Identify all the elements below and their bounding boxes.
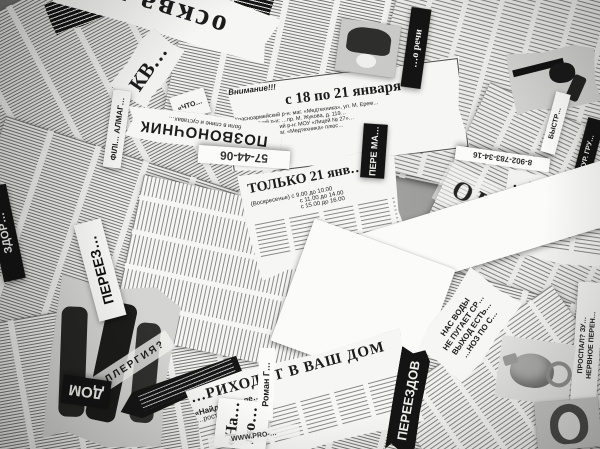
- zdor-label: ЗДОР…: [0, 211, 15, 254]
- roman-label: Роман Г…: [260, 361, 272, 406]
- rechi-label: …о речи: [408, 28, 424, 68]
- phone-number: 57-44-06: [220, 148, 269, 165]
- chto-label: «ЧТО…: [177, 98, 203, 112]
- telephone-photo: [335, 18, 402, 78]
- telephone-silhouette: [345, 25, 392, 57]
- pere-ma-label: ПЕРЕ МА…: [367, 126, 380, 177]
- pere-ma-scrap: ПЕРЕ МА…: [360, 123, 388, 179]
- portrait-photo: [534, 397, 600, 449]
- newspaper-collage-photo: осква в КВ… ФІЛІ… АЛМАГ… «ЧТО… Внимание!…: [0, 0, 600, 449]
- roman-scrap: Роман Г…: [257, 348, 276, 421]
- photo-highlight: [355, 53, 377, 70]
- teapot-photo: [494, 335, 576, 407]
- dom-label: ДОМ: [68, 381, 105, 403]
